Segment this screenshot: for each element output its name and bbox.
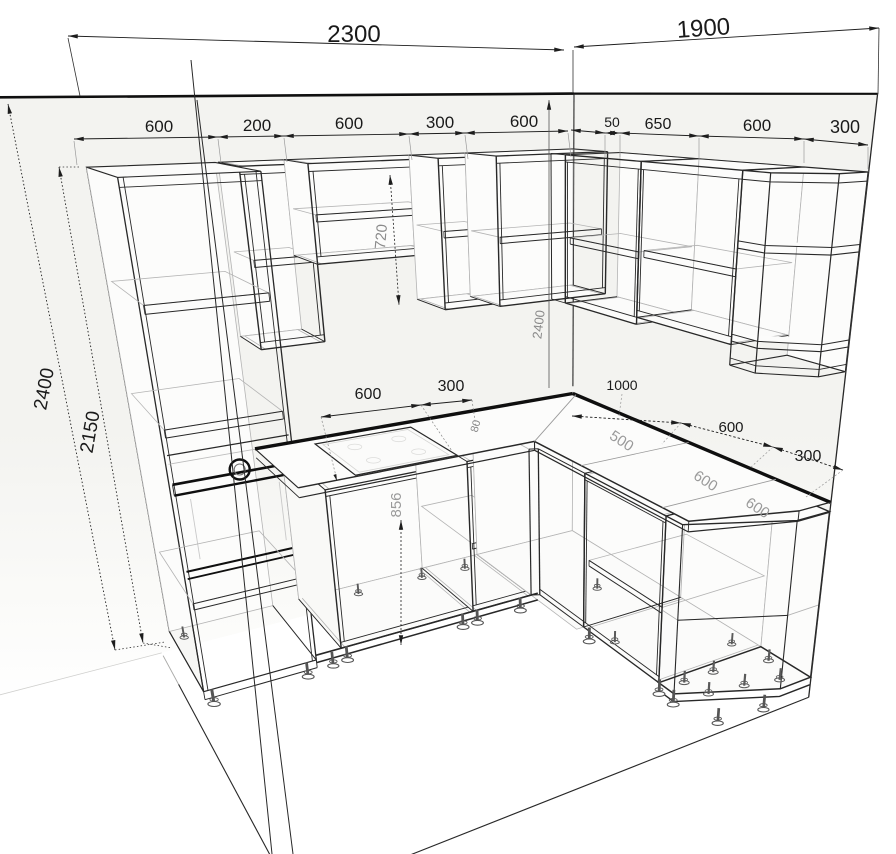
svg-text:600: 600	[145, 117, 173, 136]
svg-text:600: 600	[718, 419, 743, 436]
svg-text:856: 856	[388, 492, 405, 517]
svg-text:300: 300	[426, 113, 454, 132]
svg-text:600: 600	[355, 386, 382, 403]
svg-text:1900: 1900	[676, 13, 731, 44]
svg-text:600: 600	[743, 116, 771, 135]
svg-text:300: 300	[438, 378, 465, 395]
svg-text:1000: 1000	[606, 377, 637, 393]
svg-text:200: 200	[243, 116, 271, 135]
svg-text:300: 300	[830, 117, 860, 137]
svg-text:2300: 2300	[327, 21, 380, 48]
svg-text:720: 720	[372, 223, 391, 249]
svg-text:50: 50	[604, 114, 620, 130]
svg-text:600: 600	[335, 114, 363, 133]
svg-text:600: 600	[510, 112, 538, 131]
svg-text:650: 650	[645, 116, 672, 133]
svg-text:300: 300	[795, 448, 822, 465]
